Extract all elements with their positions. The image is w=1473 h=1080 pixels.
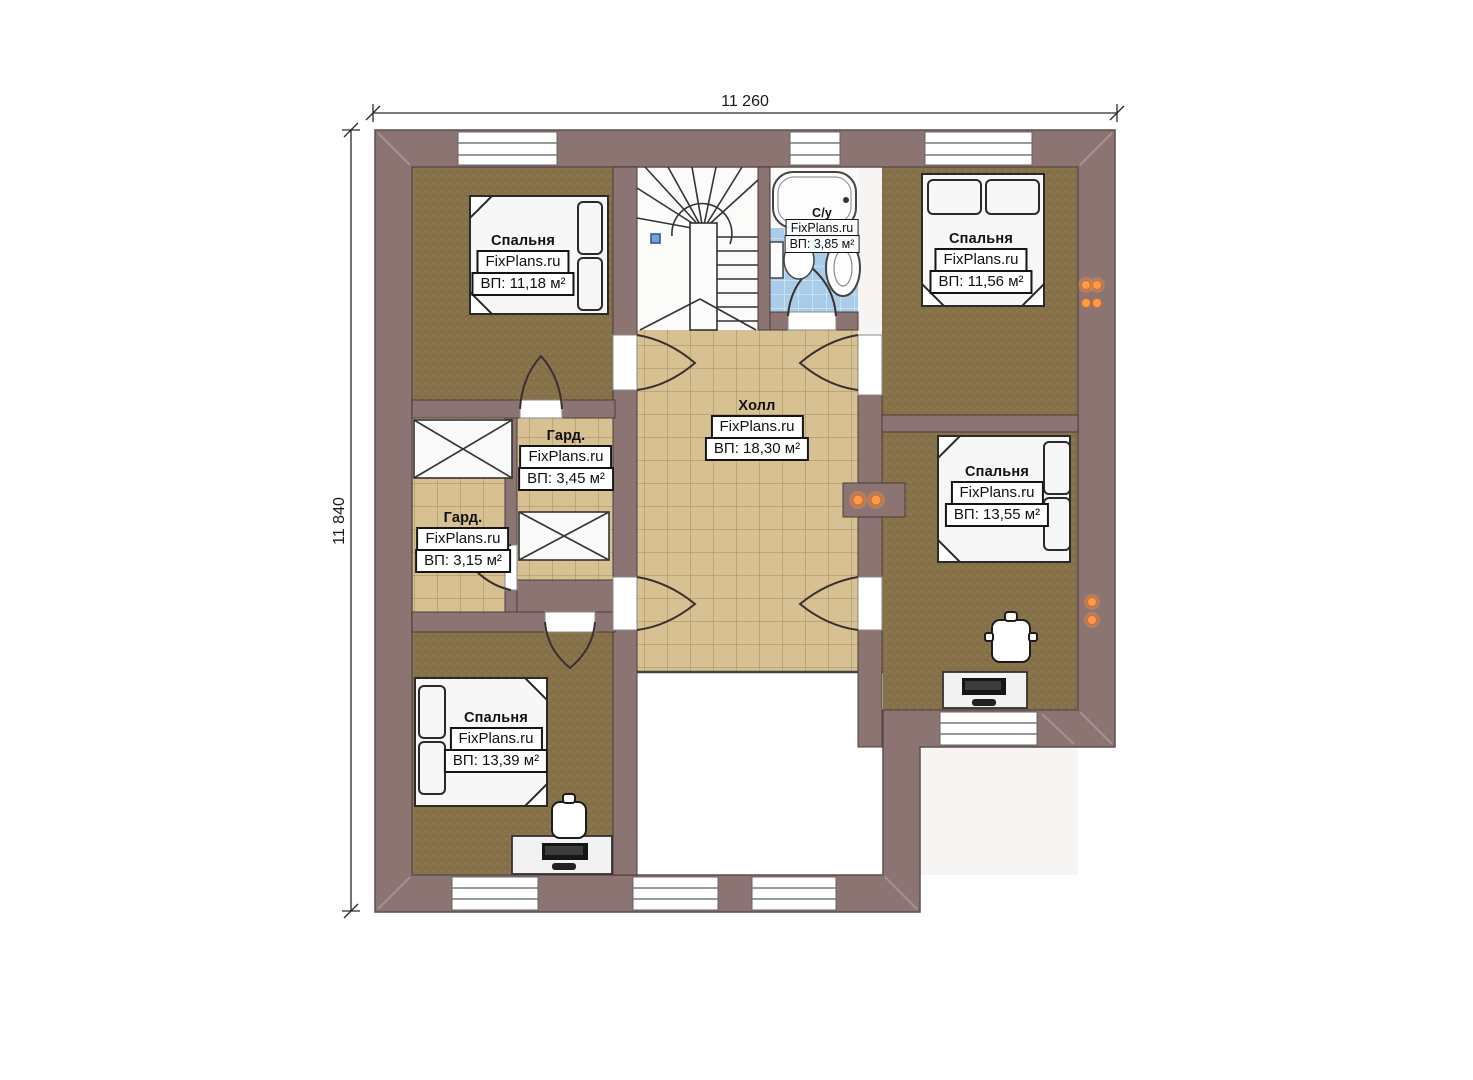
bathtub-drain — [843, 197, 849, 203]
void-floor — [637, 672, 883, 875]
keyboard — [552, 863, 576, 870]
window — [940, 712, 1037, 745]
room-name: Спальня — [491, 233, 555, 249]
floor-plan-drawing: 11 260 11 840 — [0, 0, 1473, 1080]
room-name: Гард. — [444, 510, 483, 526]
window — [458, 132, 557, 165]
room-area: ВП: 11,56 м² — [929, 270, 1032, 294]
window — [752, 877, 836, 910]
keyboard — [972, 699, 996, 706]
room-watermark: FixPlans.ru — [710, 415, 803, 439]
window — [925, 132, 1032, 165]
room-area: ВП: 18,30 м² — [705, 437, 809, 461]
dimension-top-value: 11 260 — [721, 93, 769, 110]
room-area: ВП: 11,18 м² — [471, 272, 574, 296]
window — [790, 132, 840, 165]
room-label-hall: Холл FixPlans.ru ВП: 18,30 м² — [705, 398, 809, 461]
room-name: Спальня — [965, 464, 1029, 480]
dimension-left-value: 11 840 — [331, 497, 348, 545]
dimension-top: 11 260 — [366, 93, 1124, 122]
room-watermark: FixPlans.ru — [934, 248, 1027, 272]
room-watermark: FixPlans.ru — [416, 527, 509, 551]
room-watermark: FixPlans.ru — [449, 727, 542, 751]
room-watermark: FixPlans.ru — [950, 481, 1043, 505]
room-watermark: FixPlans.ru — [476, 250, 569, 274]
room-area: ВП: 3,15 м² — [415, 549, 511, 573]
room-name: Холл — [738, 398, 775, 414]
room-name: Спальня — [464, 710, 528, 726]
room-label-bedroom-top-right: Спальня FixPlans.ru ВП: 11,56 м² — [929, 231, 1032, 294]
window — [633, 877, 718, 910]
room-name: Спальня — [949, 231, 1013, 247]
room-label-bedroom-bottom-left: Спальня FixPlans.ru ВП: 13,39 м² — [444, 710, 548, 773]
room-label-bedroom-right: Спальня FixPlans.ru ВП: 13,55 м² — [945, 464, 1049, 527]
toilet-tank — [770, 242, 783, 278]
room-name: Гард. — [547, 428, 586, 444]
room-label-wardrobe-lower: Гард. FixPlans.ru ВП: 3,15 м² — [415, 510, 511, 573]
window — [452, 877, 538, 910]
room-area: ВП: 3,85 м² — [785, 235, 860, 253]
room-name: С/у — [812, 206, 832, 220]
room-label-bathroom: С/у FixPlans.ru ВП: 3,85 м² — [785, 206, 860, 253]
room-area: ВП: 13,39 м² — [444, 749, 548, 773]
room-area: ВП: 13,55 м² — [945, 503, 1049, 527]
floor-plan-page: 11 260 11 840 — [0, 0, 1473, 1080]
room-label-wardrobe-upper: Гард. FixPlans.ru ВП: 3,45 м² — [518, 428, 614, 491]
room-watermark: FixPlans.ru — [519, 445, 612, 469]
stair-marker — [651, 234, 660, 243]
room-area: ВП: 3,45 м² — [518, 467, 614, 491]
room-label-bedroom-top-left: Спальня FixPlans.ru ВП: 11,18 м² — [471, 233, 574, 296]
dimension-left: 11 840 — [331, 123, 360, 918]
